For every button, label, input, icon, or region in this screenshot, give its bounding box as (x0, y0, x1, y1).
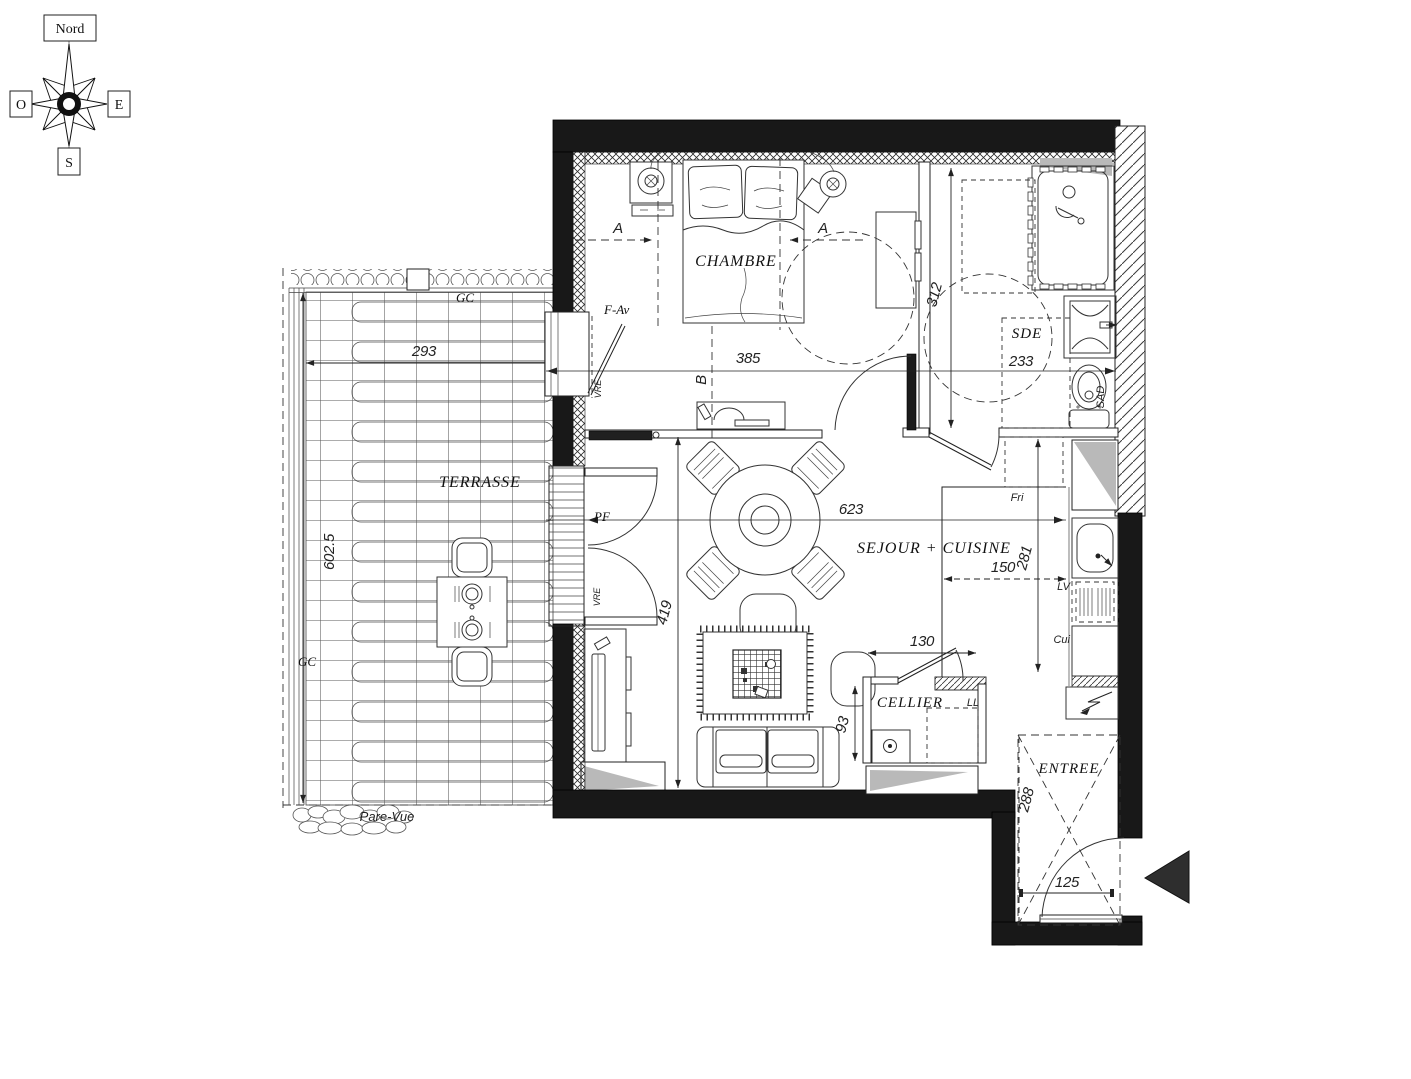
dim-entree-width: 125 (1055, 874, 1080, 891)
washbasin (1064, 296, 1117, 358)
radiator (589, 431, 659, 440)
label-guardrail-left: GC (298, 654, 316, 669)
walls (553, 120, 1145, 945)
wall-niche (866, 766, 978, 794)
dim-terrace-length: 602.5 (321, 533, 338, 570)
label-vre-door: VRE (592, 587, 602, 607)
wall-west-upper (553, 152, 573, 314)
wall-cellier-east (978, 684, 986, 763)
compass-west-label: O (16, 98, 26, 113)
shower (1028, 166, 1114, 290)
floor-plan-page: Nord S E O (0, 0, 1411, 1079)
dim-terrace-width: 293 (411, 343, 437, 360)
label-sad: SAD (1095, 386, 1107, 409)
room-label-chambre: CHAMBRE (695, 253, 777, 270)
wall-east (1118, 513, 1142, 838)
dishwasher (1072, 578, 1118, 626)
terrasse-area: 293 602.5 GC GC TERRASSE Pare-Vue (283, 268, 557, 835)
door-sde (929, 432, 999, 470)
bed (683, 160, 804, 323)
room-label-entree: ENTREE (1038, 761, 1100, 777)
label-pf: PF (593, 509, 611, 524)
label-f-av: F-Av (603, 302, 629, 317)
dim-cellier-depth: 93 (832, 714, 853, 735)
compass-north-label: Nord (56, 22, 85, 37)
terrace-chair (452, 538, 492, 577)
compass-east-label: E (115, 98, 124, 113)
label-vre-window: VRE (593, 379, 603, 399)
sde-area: SDE 233 SAD (924, 158, 1117, 428)
terrace-chair (452, 647, 492, 686)
wall-party-east (1115, 126, 1145, 516)
door-chambre (835, 354, 916, 430)
compass-center-ring (60, 95, 78, 113)
door-entree (1040, 838, 1124, 923)
sofa (697, 727, 839, 787)
shower-drain (1063, 186, 1075, 198)
rug (700, 629, 810, 717)
room-label-terrasse: TERRASSE (439, 474, 521, 491)
wall-north (553, 120, 1120, 152)
compass-rose: Nord S E O (10, 15, 130, 175)
section-b: B (693, 375, 710, 385)
terrace-decking (306, 292, 553, 805)
shower-head-icon (1056, 206, 1078, 218)
room-label-sejour-cuisine: SEJOUR + CUISINE (857, 540, 1011, 557)
sejour-area (581, 440, 875, 793)
entrance-arrow-icon (1145, 851, 1189, 903)
compass-south-label: S (65, 156, 73, 171)
wall-sde-south (999, 428, 1118, 437)
wall-west-lower (553, 624, 573, 792)
duct-shaft (1072, 440, 1118, 510)
nightstand-left (630, 152, 673, 216)
kitchen-sink (1072, 518, 1118, 578)
chambre-area: A A B CHAMBRE 385 312 F-Av VRE (575, 152, 951, 440)
room-label-cellier: CELLIER (877, 695, 943, 711)
counter-edge (942, 487, 1066, 677)
electrical-panel (1066, 687, 1118, 719)
console-table (697, 402, 785, 429)
section-a-left: A (612, 220, 623, 237)
entree-area: ENTREE 288 125 (1015, 735, 1120, 925)
label-ll: LL (967, 697, 979, 709)
label-fri: Fri (1011, 492, 1024, 504)
label-lv: LV (1057, 581, 1072, 593)
wall-entree-south (992, 922, 1142, 945)
label-pare-vue: Pare-Vue (360, 809, 415, 824)
dim-entree-depth: 288 (1015, 785, 1038, 815)
label-guardrail-top: GC (456, 290, 474, 305)
section-a-right: A (817, 220, 828, 237)
terrace-post (407, 269, 429, 290)
dim-chambre-width: 385 (736, 350, 761, 367)
dim-sejour-width: 623 (839, 501, 864, 518)
dim-sde-width: 233 (1008, 353, 1034, 370)
shower-zone-dashed (962, 180, 1035, 293)
tv-cabinet (584, 629, 631, 767)
dim-cellier-width: 130 (910, 633, 935, 650)
window-f-av (545, 312, 625, 398)
porte-fenetre (549, 466, 657, 626)
dim-cuisine-depth: 281 (1013, 544, 1036, 573)
fridge-slot (1005, 437, 1063, 487)
wall-cellier-west (863, 677, 871, 763)
wall-west-mid (553, 396, 573, 466)
washing-machine (872, 730, 910, 763)
dim-sejour-depth: 419 (653, 598, 676, 627)
room-label-sde: SDE (1012, 326, 1043, 342)
wall-niche (581, 762, 665, 793)
cooker-slot (1072, 626, 1118, 676)
cellier-reserve-dashed (927, 708, 978, 763)
floor-plan-drawing: Nord S E O (0, 0, 1411, 1079)
label-cui: Cui (1053, 634, 1070, 646)
